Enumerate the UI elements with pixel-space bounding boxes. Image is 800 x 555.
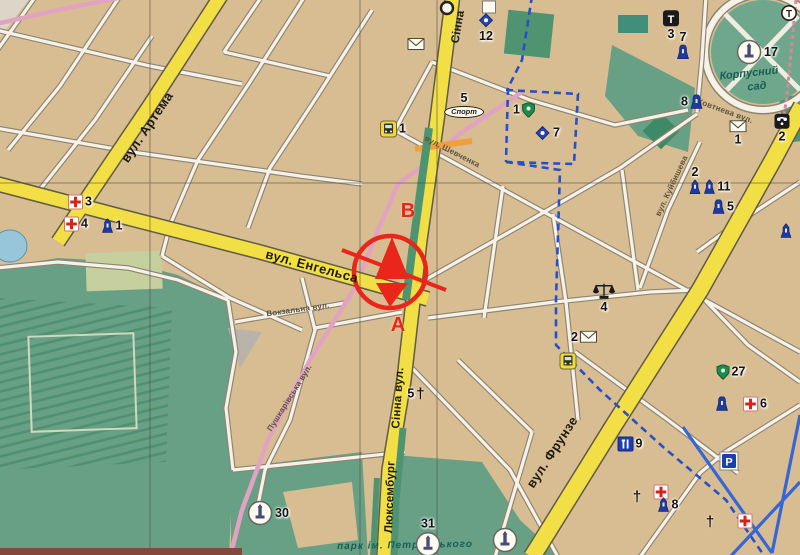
arrow-up-icon (375, 237, 409, 279)
city-map[interactable]: вул. Артемавул. ЕнгельсаСіннаСінна вул.Л… (0, 0, 800, 555)
pond (0, 230, 27, 262)
transit-route-solid (683, 415, 800, 555)
map-graphics (0, 0, 800, 555)
scan-edge-strip (0, 548, 242, 555)
